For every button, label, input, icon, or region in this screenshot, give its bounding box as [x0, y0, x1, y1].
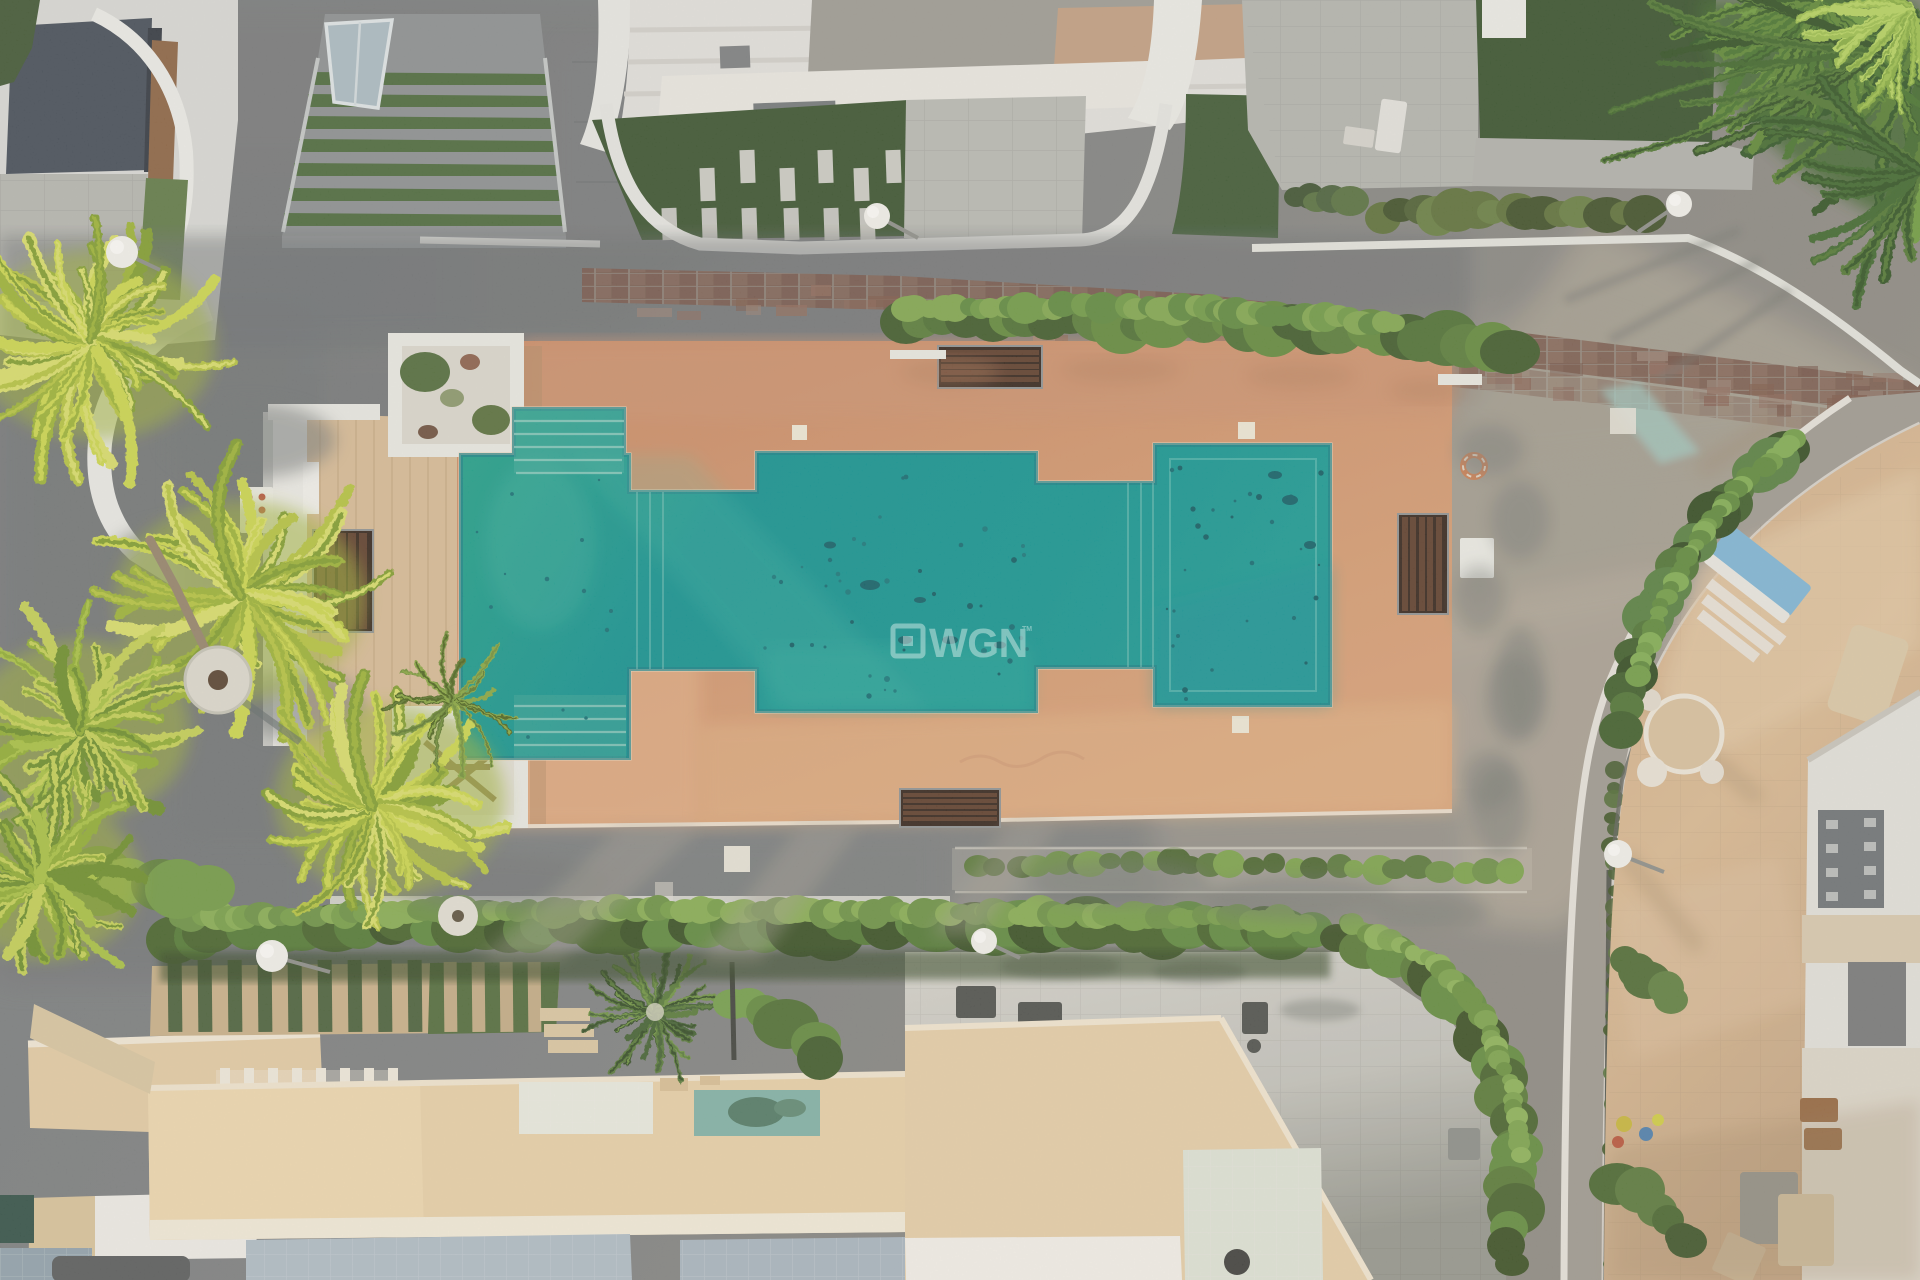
svg-text:WGN: WGN: [929, 620, 1028, 666]
svg-text:TM: TM: [1022, 626, 1032, 633]
